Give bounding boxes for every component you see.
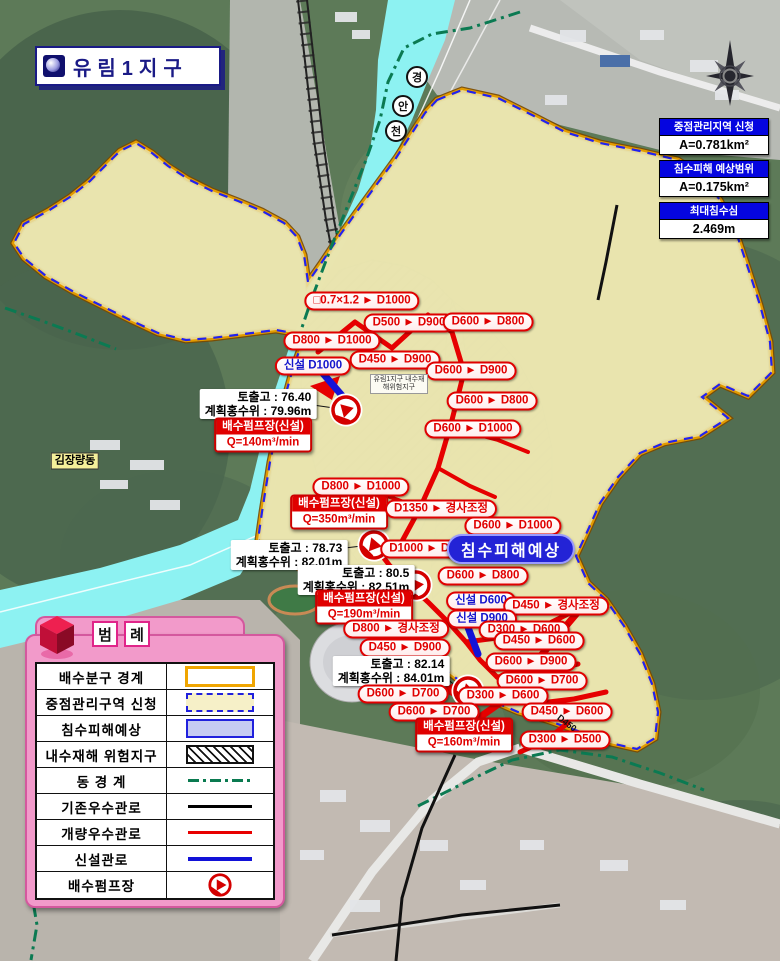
legend-symbol-existing (167, 794, 273, 819)
pipe-label: D600 ► D1000 (464, 517, 561, 536)
legend-label: 기존우수관로 (37, 794, 167, 819)
legend-table: 배수분구 경계중점관리구역 신청침수피해예상내수재해 위험지구동 경 계기존우수… (35, 662, 275, 900)
pipe-label: D450 ► 경사조정 (503, 597, 609, 616)
pipe-label: D500 ► D900 (364, 314, 455, 333)
info-box-value: A=0.175km² (660, 178, 768, 196)
info-box-header: 중점관리지역 신청 (660, 119, 768, 136)
pump-station-label: 배수펌프장(신설)Q=140m³/min (214, 418, 312, 453)
legend-row-focus: 중점관리구역 신청 (37, 690, 273, 716)
info-box-value: A=0.781km² (660, 136, 768, 154)
pipe-label: D600 ► D800 (447, 392, 538, 411)
legend-label: 신설관로 (37, 846, 167, 871)
pipe-label: D450 ► D900 (360, 639, 451, 658)
pipe-label: D300 ► D500 (520, 731, 611, 750)
legend-panel: 배수분구 경계중점관리구역 신청침수피해예상내수재해 위험지구동 경 계기존우수… (25, 634, 285, 908)
flood-area-label: 침수피해예상 (447, 534, 575, 564)
legend-row-newpipe: 신설관로 (37, 846, 273, 872)
river-name-char: 경 (406, 66, 428, 88)
legend-row-hazard: 내수재해 위험지구 (37, 742, 273, 768)
elevation-label: 토출고 : 82.14계획홍수위 : 84.01m (333, 656, 450, 686)
pump-station-title: 배수펌프장(신설) (216, 420, 310, 435)
legend-symbol-hazard (167, 742, 273, 767)
pipe-label: D600 ► D800 (443, 313, 534, 332)
legend-symbol-district (167, 664, 273, 689)
flood-symbol (186, 719, 254, 738)
improved-symbol (188, 831, 252, 834)
legend-label: 침수피해예상 (37, 716, 167, 741)
map-title-box: 유림1지구 (35, 46, 221, 86)
legend-row-district: 배수분구 경계 (37, 664, 273, 690)
new-pipe-label: 신설 D1000 (275, 357, 351, 376)
legend-symbol-flood (167, 716, 273, 741)
legend-label: 중점관리구역 신청 (37, 690, 167, 715)
river-name-char: 천 (385, 120, 407, 142)
info-box-1: 침수피해 예상범위A=0.175km² (659, 160, 769, 197)
page-title: 유림1지구 (73, 52, 188, 81)
pipe-label: D600 ► D700 (358, 685, 449, 704)
discharge-elevation: 토출고 : 82.14 (338, 657, 445, 671)
pipe-label: D600 ► D900 (486, 653, 577, 672)
pipe-label: D450 ► D600 (494, 632, 585, 651)
design-flood-level: 계획홍수위 : 84.01m (338, 671, 445, 685)
legend-label: 동 경 계 (37, 768, 167, 793)
discharge-elevation: 토출고 : 78.73 (236, 541, 343, 555)
pump-capacity: Q=350m³/min (292, 512, 386, 528)
map-figure: 유림1지구 중점관리지역 신청A=0.781km²침수피해 예상범위A=0.17… (0, 0, 780, 961)
existing-symbol (188, 805, 252, 808)
elevation-label: 토출고 : 76.40계획홍수위 : 79.96m (200, 389, 317, 419)
pipe-label: D800 ► D1000 (283, 332, 380, 351)
design-flood-level: 계획홍수위 : 79.96m (205, 404, 312, 418)
info-boxes: 중점관리지역 신청A=0.781km²침수피해 예상범위A=0.175km²최대… (659, 118, 769, 239)
river-name-char: 안 (392, 95, 414, 117)
pump-station-label: 배수펌프장(신설)Q=160m³/min (415, 718, 513, 753)
legend-label: 개량우수관로 (37, 820, 167, 845)
legend-symbol-focus (167, 690, 273, 715)
pipe-label: D600 ► D1000 (424, 420, 521, 439)
legend-symbol-newpipe (167, 846, 273, 871)
pump-station-title: 배수펌프장(신설) (417, 720, 511, 735)
pipe-label: □0.7×1.2 ► D1000 (304, 292, 419, 311)
legend-label: 내수재해 위험지구 (37, 742, 167, 767)
legend-title-char: 례 (124, 621, 150, 647)
pump-station-title: 배수펌프장(신설) (317, 592, 411, 607)
pipe-label: D800 ► 경사조정 (343, 620, 449, 639)
pump-capacity: Q=160m³/min (417, 735, 511, 751)
discharge-elevation: 토출고 : 76.40 (205, 390, 312, 404)
pipe-label: D600 ► D900 (426, 362, 517, 381)
info-box-0: 중점관리지역 신청A=0.781km² (659, 118, 769, 155)
legend-symbol-improved (167, 820, 273, 845)
pump-icon (207, 872, 233, 898)
legend-cube-icon (36, 612, 78, 660)
focus-symbol (186, 693, 254, 712)
legend-title: 범례 (92, 621, 150, 647)
legend-row-existing: 기존우수관로 (37, 794, 273, 820)
info-box-value: 2.469m (660, 220, 768, 238)
legend-symbol-pump (167, 872, 273, 898)
legend-row-flood: 침수피해예상 (37, 716, 273, 742)
pump-station-label: 배수펌프장(신설)Q=350m³/min (290, 495, 388, 530)
legend-row-pump: 배수펌프장 (37, 872, 273, 898)
discharge-elevation: 토출고 : 80.5 (303, 566, 410, 580)
pump-station-title: 배수펌프장(신설) (292, 497, 386, 512)
pipe-label: D600 ► D800 (438, 567, 529, 586)
legend-label: 배수분구 경계 (37, 664, 167, 689)
place-name-label: 김장량동 (51, 453, 99, 470)
hazard-symbol (186, 745, 254, 764)
legend-row-improved: 개량우수관로 (37, 820, 273, 846)
dong-symbol (188, 779, 252, 782)
legend-symbol-dong (167, 768, 273, 793)
title-cube-icon (43, 55, 65, 77)
pump-capacity: Q=140m³/min (216, 435, 310, 451)
info-box-header: 최대침수심 (660, 203, 768, 220)
legend-label: 배수펌프장 (37, 872, 167, 898)
district-symbol (185, 666, 255, 687)
legend-row-dong: 동 경 계 (37, 768, 273, 794)
legend-title-char: 범 (92, 621, 118, 647)
info-box-header: 침수피해 예상범위 (660, 161, 768, 178)
info-box-2: 최대침수심2.469m (659, 202, 769, 239)
map-annotation: 유림1지구 내수재해위험지구 (370, 374, 428, 394)
newpipe-symbol (188, 857, 252, 861)
